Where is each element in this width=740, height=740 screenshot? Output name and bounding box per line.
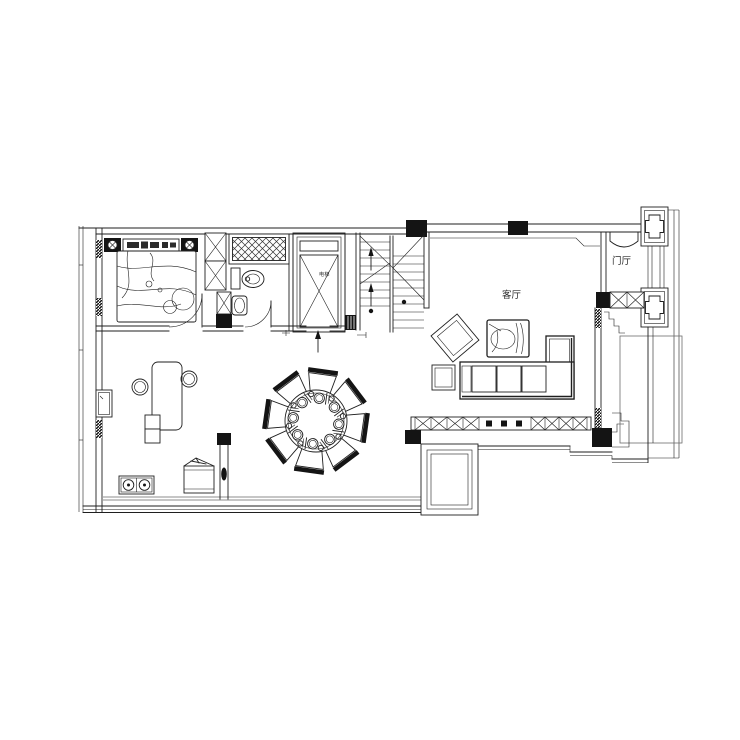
column-block: [508, 221, 528, 235]
southwest-furniture: [119, 433, 231, 499]
armchair: [487, 320, 529, 357]
headboard-lamp-right: [181, 238, 198, 252]
entrance-hall: 门厅: [595, 207, 668, 440]
elevator-transom: [300, 241, 338, 251]
elevator-entry-arrow: [282, 330, 321, 352]
staircase: [345, 233, 429, 338]
cabinet-with-throw: [184, 458, 214, 493]
headboard-panel: [123, 239, 179, 251]
side-table: [432, 365, 455, 390]
double-burner-unit: [119, 476, 154, 494]
toilet: [231, 268, 264, 289]
ceiling-recess-line: [430, 238, 600, 246]
column-block: [405, 430, 421, 444]
bathroom: [229, 234, 289, 327]
wardrobe: [205, 233, 232, 328]
dining-set: [264, 369, 367, 472]
stair-treads-left: [360, 242, 390, 306]
bedroom: [104, 238, 202, 327]
elevator-label: 电梯: [319, 270, 329, 278]
headboard-lamp-left: [104, 238, 121, 252]
accent-chair: [431, 314, 479, 362]
shoe-cabinet: [596, 292, 644, 308]
study-area: [96, 362, 197, 443]
shower: [229, 234, 289, 264]
radiator: [96, 390, 112, 417]
wall-poche: [96, 420, 102, 438]
balcony-bay: [421, 443, 648, 515]
door-handle-blob: [221, 468, 227, 481]
desk-cabinet: [145, 415, 160, 429]
bed: [117, 251, 196, 322]
bathroom-door: [245, 301, 271, 327]
wall-poche: [96, 240, 102, 258]
stair-treads-right: [393, 256, 424, 328]
step-moulding: [604, 312, 625, 333]
living-room-label: 客厅: [502, 289, 522, 301]
elevator: 电梯: [282, 233, 345, 352]
living-room: 客厅: [430, 238, 600, 399]
corner-step-moulding: [612, 413, 629, 447]
wall-poche: [96, 298, 102, 316]
stair-direction-arrows: [357, 247, 406, 338]
column-block: [216, 314, 232, 328]
entrance-hall-label: 门厅: [612, 255, 632, 267]
south-window-band: [83, 497, 458, 513]
entry-niche: [610, 233, 638, 247]
partition-wall: [217, 433, 231, 499]
column-block: [592, 428, 612, 447]
floor-plan: 电梯: [0, 0, 740, 740]
sink: [232, 296, 247, 315]
